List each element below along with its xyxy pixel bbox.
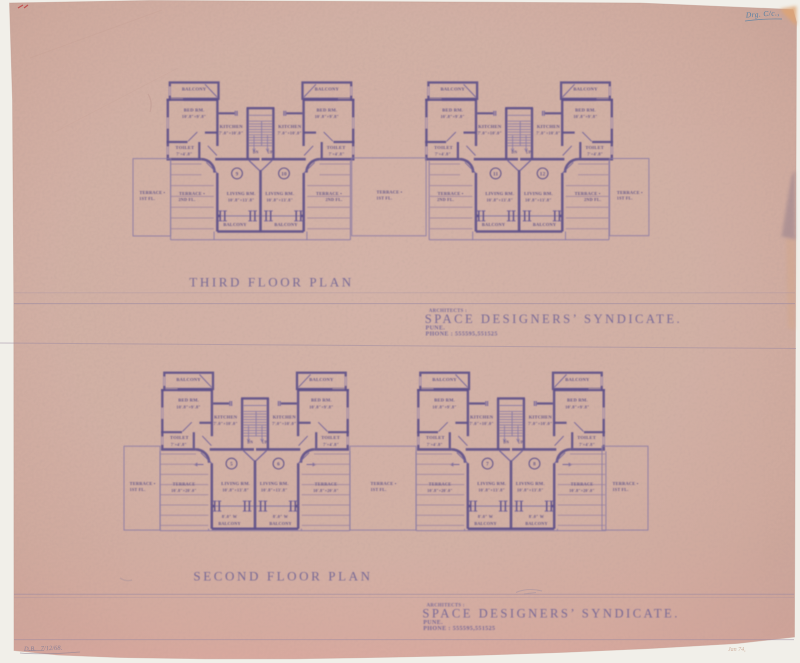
svg-text:10′.8″×9′.8″: 10′.8″×9′.8″ <box>176 404 200 409</box>
svg-text:UP: UP <box>267 151 273 155</box>
svg-text:TERRACE •: TERRACE • <box>316 191 342 196</box>
svg-text:10′.8″×9′.8″: 10′.8″×9′.8″ <box>573 114 597 119</box>
svg-text:BED RM.: BED RM. <box>434 398 455 403</box>
svg-text:9: 9 <box>236 171 239 177</box>
svg-text:7: 7 <box>486 462 489 468</box>
svg-text:BALCONY: BALCONY <box>269 521 291 526</box>
svg-text:7′.0″×10′.0″: 7′.0″×10′.0″ <box>528 421 552 426</box>
svg-text:12: 12 <box>540 171 546 177</box>
svg-text:TERRACE •: TERRACE • <box>438 191 464 196</box>
svg-text:7′×4′.8″: 7′×4′.8″ <box>579 442 595 447</box>
svg-text:BED RM.: BED RM. <box>311 398 332 403</box>
svg-text:10′.8″×13′.8″: 10′.8″×13′.8″ <box>517 488 544 493</box>
svg-text:BALCONY: BALCONY <box>441 87 466 92</box>
svg-text:10′.8″×13′.8″: 10′.8″×13′.8″ <box>478 488 505 493</box>
svg-text:10′.8″×9′.8″: 10′.8″×9′.8″ <box>432 404 456 409</box>
svg-text:6: 6 <box>277 462 280 468</box>
svg-text:10′.8″×13′.8″: 10′.8″×13′.8″ <box>222 488 249 493</box>
svg-text:TOILET: TOILET <box>327 145 346 150</box>
svg-text:7′×4′.8″: 7′×4′.8″ <box>587 152 603 157</box>
svg-text:7′×4′.8″: 7′×4′.8″ <box>171 442 187 447</box>
svg-text:8: 8 <box>533 462 536 468</box>
svg-text:TERRACE •: TERRACE • <box>139 190 165 195</box>
svg-text:TOILET: TOILET <box>170 435 189 440</box>
svg-text:LIVING RM.: LIVING RM. <box>260 481 289 486</box>
svg-text:BED RM.: BED RM. <box>184 108 205 113</box>
svg-text:TOILET: TOILET <box>585 145 604 150</box>
svg-text:10′.8″×9′.8″: 10′.8″×9′.8″ <box>315 114 339 119</box>
svg-text:2ND FL.: 2ND FL. <box>326 197 343 202</box>
svg-text:THIRD FLOOR PLAN: THIRD FLOOR PLAN <box>189 275 353 290</box>
svg-text:BALCONY: BALCONY <box>432 377 457 382</box>
svg-text:BALCONY: BALCONY <box>573 87 598 92</box>
svg-text:8′.0″ W: 8′.0″ W <box>529 514 545 519</box>
svg-text:TERRACE: TERRACE <box>429 481 452 486</box>
svg-text:1ST FL.: 1ST FL. <box>617 196 633 201</box>
svg-text:TERRACE •: TERRACE • <box>575 191 601 196</box>
svg-text:DN: DN <box>503 441 509 445</box>
svg-text:KITCHEN: KITCHEN <box>470 414 494 419</box>
svg-text:LIVING RM.: LIVING RM. <box>485 191 514 196</box>
svg-text:LIVING RM.: LIVING RM. <box>227 191 256 196</box>
svg-text:TERRACE: TERRACE <box>571 481 594 486</box>
svg-text:KITCHEN: KITCHEN <box>537 124 561 129</box>
svg-text:LIVING RM.: LIVING RM. <box>516 481 545 486</box>
svg-text:10′.8″×13′.8″: 10′.8″×13′.8″ <box>525 197 552 202</box>
svg-text:TERRACE •: TERRACE • <box>130 481 156 486</box>
svg-text:DN: DN <box>253 151 259 155</box>
svg-text:PHONE : 555595,551525: PHONE : 555595,551525 <box>426 332 498 338</box>
svg-text:7′.0″×10′.0″: 7′.0″×10′.0″ <box>278 131 302 136</box>
svg-text:1ST FL.: 1ST FL. <box>613 487 629 492</box>
svg-text:1ST FL.: 1ST FL. <box>139 196 155 201</box>
svg-text:SECOND FLOOR PLAN: SECOND FLOOR PLAN <box>193 569 372 584</box>
svg-text:2ND FL.: 2ND FL. <box>179 197 196 202</box>
svg-text:TERRACE •: TERRACE • <box>376 190 402 195</box>
svg-text:BALCONY: BALCONY <box>474 521 496 526</box>
svg-text:KITCHEN: KITCHEN <box>278 124 302 129</box>
svg-text:UP: UP <box>518 441 524 445</box>
svg-text:BALCONY: BALCONY <box>482 222 506 227</box>
svg-text:KITCHEN: KITCHEN <box>273 414 297 419</box>
svg-text:PHONE : 555595,551525: PHONE : 555595,551525 <box>423 626 495 632</box>
svg-text:TOILET: TOILET <box>434 145 453 150</box>
svg-text:7′×4′.8″: 7′×4′.8″ <box>329 152 345 157</box>
svg-text:8′.0″ W: 8′.0″ W <box>273 514 289 519</box>
svg-text:BALCONY: BALCONY <box>223 222 247 227</box>
svg-text:8′.0″ W: 8′.0″ W <box>478 514 494 519</box>
svg-text:BED RM.: BED RM. <box>317 108 338 113</box>
svg-text:8′.0″ W: 8′.0″ W <box>222 514 238 519</box>
svg-text:BALCONY: BALCONY <box>525 521 547 526</box>
svg-text:LIVING RM.: LIVING RM. <box>524 191 553 196</box>
svg-text:7′.0″×10′.0″: 7′.0″×10′.0″ <box>478 131 502 136</box>
svg-text:BED RM.: BED RM. <box>442 108 463 113</box>
svg-text:TERRACE: TERRACE <box>315 481 338 486</box>
svg-text:TERRACE •: TERRACE • <box>613 481 639 486</box>
svg-text:2ND FL.: 2ND FL. <box>437 197 454 202</box>
svg-text:BALCONY: BALCONY <box>218 521 240 526</box>
svg-text:7′×4′.8″: 7′×4′.8″ <box>323 442 339 447</box>
svg-text:7′.0″×10′.0″: 7′.0″×10′.0″ <box>272 421 296 426</box>
svg-text:10′.8″×13′.8″: 10′.8″×13′.8″ <box>228 197 255 202</box>
svg-text:UP: UP <box>526 151 532 155</box>
svg-text:SPACE DESIGNERS’ SYNDICATE.: SPACE DESIGNERS’ SYNDICATE. <box>422 607 679 621</box>
svg-text:7′.0″×10′.0″: 7′.0″×10′.0″ <box>214 421 238 426</box>
svg-text:LIVING RM.: LIVING RM. <box>265 191 294 196</box>
svg-text:7′×4′.8″: 7′×4′.8″ <box>435 152 451 157</box>
svg-text:7′×4′.8″: 7′×4′.8″ <box>176 152 192 157</box>
svg-text:7′.0″×10′.0″: 7′.0″×10′.0″ <box>470 421 494 426</box>
svg-text:TERRACE: TERRACE <box>173 481 196 486</box>
svg-text:D.B. 7/12/68.: D.B. 7/12/68. <box>23 645 63 653</box>
svg-text:TOILET: TOILET <box>321 435 340 440</box>
svg-text:KITCHEN: KITCHEN <box>529 414 553 419</box>
svg-text:10′.8″×20′.0″: 10′.8″×20′.0″ <box>171 488 197 493</box>
svg-text:10′.8″×20′.0″: 10′.8″×20′.0″ <box>569 488 595 493</box>
svg-text:BALCONY: BALCONY <box>315 87 340 92</box>
svg-text:10′.8″×9′.8″: 10′.8″×9′.8″ <box>309 404 333 409</box>
svg-text:KITCHEN: KITCHEN <box>220 124 244 129</box>
svg-text:10′.8″×13′.8″: 10′.8″×13′.8″ <box>486 197 513 202</box>
svg-text:7′.0″×10′.0″: 7′.0″×10′.0″ <box>219 131 243 136</box>
svg-text:LIVING RM.: LIVING RM. <box>221 481 250 486</box>
svg-text:BALCONY: BALCONY <box>182 87 207 92</box>
svg-text:BALCONY: BALCONY <box>274 222 298 227</box>
svg-text:BALCONY: BALCONY <box>533 222 557 227</box>
svg-text:BALCONY: BALCONY <box>309 377 334 382</box>
svg-text:BED RM.: BED RM. <box>178 398 199 403</box>
svg-text:10′.8″×13′.8″: 10′.8″×13′.8″ <box>261 488 288 493</box>
svg-text:UP: UP <box>262 441 268 445</box>
svg-text:10′.8″×20′.0″: 10′.8″×20′.0″ <box>313 488 339 493</box>
svg-text:KITCHEN: KITCHEN <box>214 414 238 419</box>
svg-text:7′×4′.8″: 7′×4′.8″ <box>427 442 443 447</box>
svg-text:TERRACE •: TERRACE • <box>371 481 397 486</box>
svg-text:10: 10 <box>281 171 287 177</box>
svg-text:5: 5 <box>230 462 233 468</box>
svg-text:BED RM.: BED RM. <box>567 398 588 403</box>
svg-text:10′.8″×9′.8″: 10′.8″×9′.8″ <box>565 404 589 409</box>
svg-text:2ND FL.: 2ND FL. <box>584 197 601 202</box>
svg-text:TOILET: TOILET <box>577 435 596 440</box>
svg-text:BALCONY: BALCONY <box>565 377 590 382</box>
svg-text:DN: DN <box>512 151 518 155</box>
svg-text:TERRACE •: TERRACE • <box>179 191 205 196</box>
svg-text:10′.8″×9′.8″: 10′.8″×9′.8″ <box>182 114 206 119</box>
svg-text:7′.0″×10′.0″: 7′.0″×10′.0″ <box>536 131 560 136</box>
svg-text:10′.8″×13′.8″: 10′.8″×13′.8″ <box>266 197 293 202</box>
svg-text:10′.8″×9′.8″: 10′.8″×9′.8″ <box>441 114 465 119</box>
svg-text:TOILET: TOILET <box>426 435 445 440</box>
svg-text:LIVING RM.: LIVING RM. <box>477 481 506 486</box>
svg-text:10′.8″×20′.0″: 10′.8″×20′.0″ <box>427 488 453 493</box>
svg-text:SPACE DESIGNERS’ SYNDICATE.: SPACE DESIGNERS’ SYNDICATE. <box>425 312 682 326</box>
svg-text:BALCONY: BALCONY <box>176 377 201 382</box>
svg-text:DN: DN <box>247 441 253 445</box>
svg-text:Jan 74,: Jan 74, <box>728 646 746 653</box>
svg-text:1ST FL.: 1ST FL. <box>371 487 387 492</box>
svg-text:KITCHEN: KITCHEN <box>478 124 502 129</box>
svg-text:1ST FL.: 1ST FL. <box>130 487 146 492</box>
svg-text:BED RM.: BED RM. <box>575 108 596 113</box>
svg-text:TERRACE •: TERRACE • <box>617 190 643 195</box>
svg-text:1ST FL.: 1ST FL. <box>376 196 392 201</box>
svg-text:11: 11 <box>493 171 499 177</box>
svg-text:TOILET: TOILET <box>176 145 195 150</box>
